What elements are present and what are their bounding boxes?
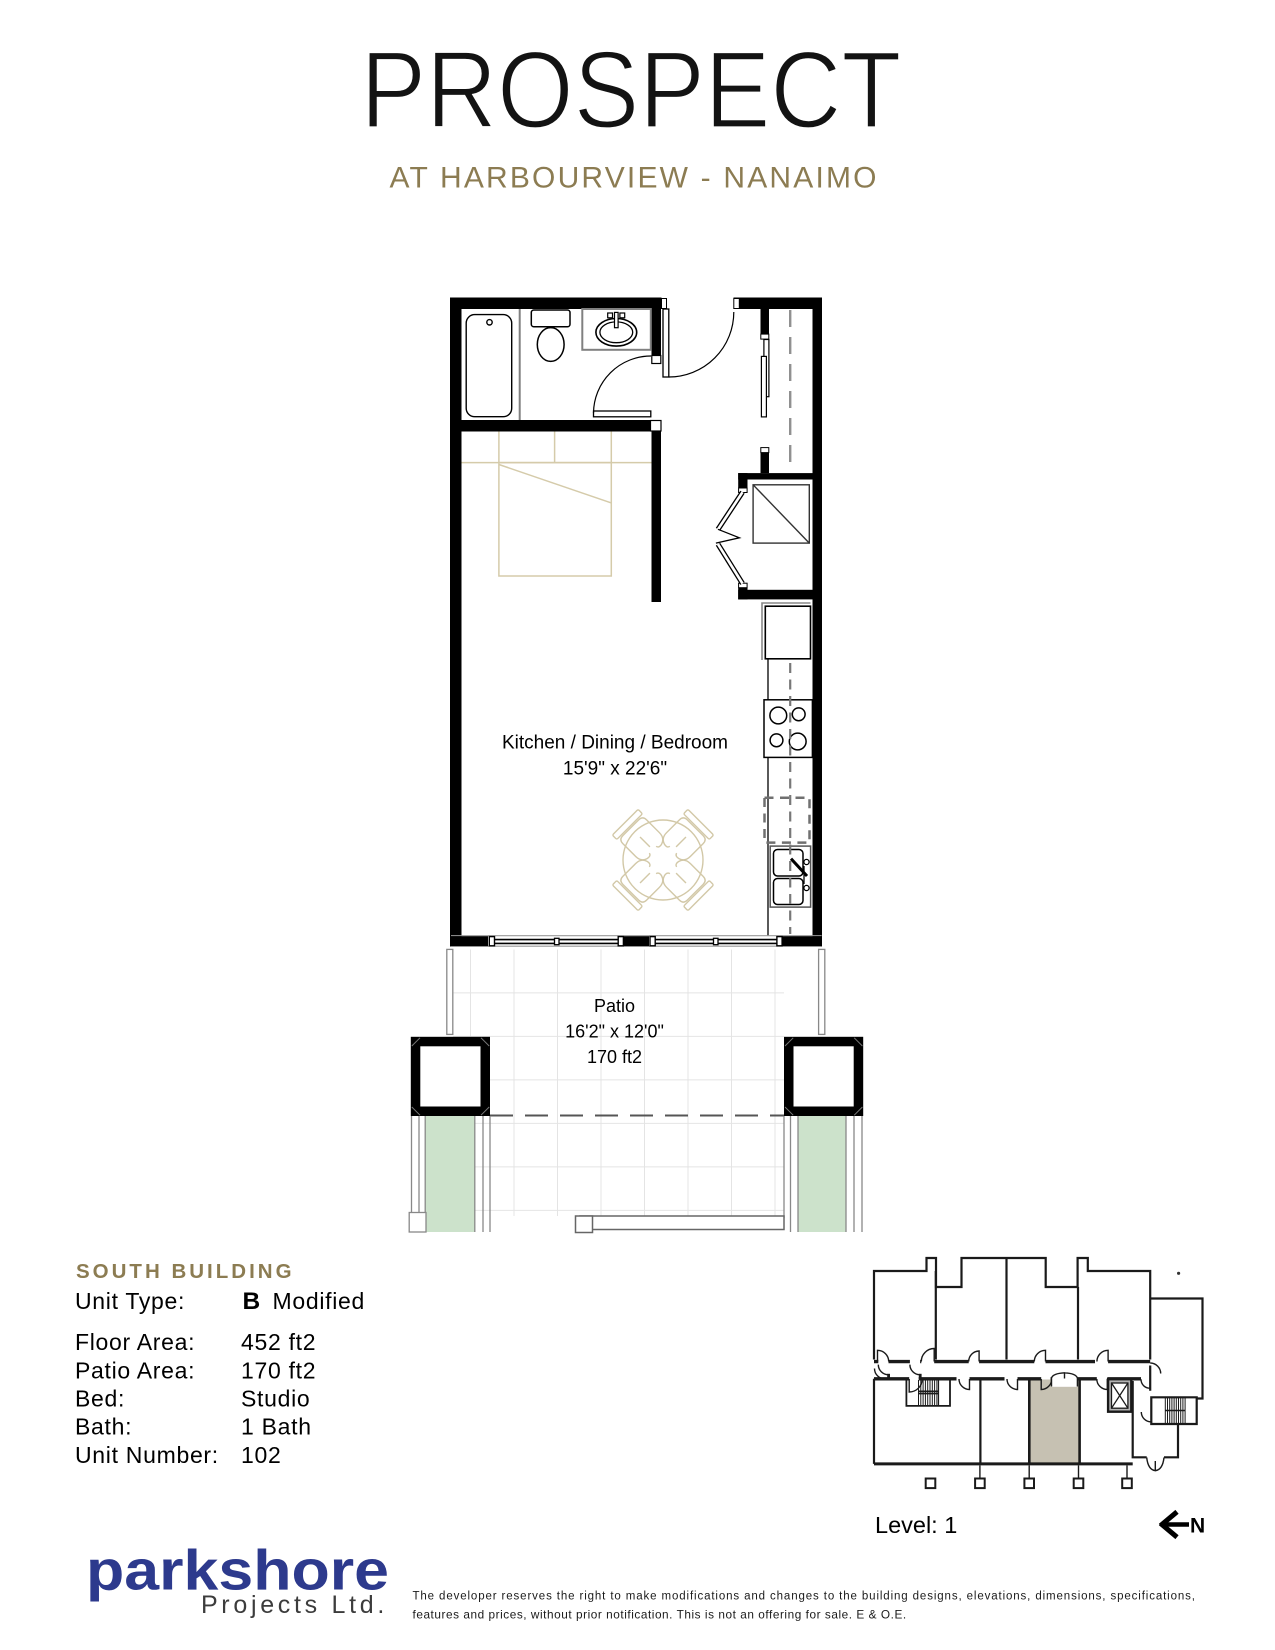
svg-text:1 Bath: 1 Bath [241, 1414, 312, 1440]
svg-text:Modified: Modified [273, 1288, 366, 1314]
svg-text:AT HARBOURVIEW - NANAIMO: AT HARBOURVIEW - NANAIMO [390, 162, 877, 195]
svg-text:Patio: Patio [594, 996, 635, 1016]
svg-text:Unit Number:: Unit Number: [75, 1442, 219, 1468]
svg-text:Projects Ltd.: Projects Ltd. [201, 1591, 388, 1619]
svg-text:102: 102 [241, 1442, 281, 1468]
svg-text:N: N [1190, 1515, 1205, 1538]
svg-text:Floor Area:: Floor Area: [75, 1329, 195, 1355]
svg-text:Unit Type:: Unit Type: [75, 1288, 185, 1314]
svg-text:SOUTH BUILDING: SOUTH BUILDING [76, 1260, 295, 1283]
svg-text:Studio: Studio [241, 1386, 310, 1412]
svg-text:16'2" x 12'0": 16'2" x 12'0" [565, 1022, 664, 1042]
svg-text:features and prices, without p: features and prices, without prior notif… [413, 1608, 907, 1622]
svg-text:The developer reserves the rig: The developer reserves the right to make… [413, 1591, 1195, 1603]
svg-text:170 ft2: 170 ft2 [241, 1358, 316, 1384]
svg-text:170 ft2: 170 ft2 [587, 1047, 642, 1067]
svg-text:PROSPECT: PROSPECT [361, 30, 902, 152]
svg-text:Bed:: Bed: [75, 1386, 125, 1412]
svg-text:Level: 1: Level: 1 [875, 1512, 957, 1538]
svg-text:Bath:: Bath: [75, 1414, 132, 1440]
svg-text:452 ft2: 452 ft2 [241, 1329, 316, 1355]
svg-text:Kitchen / Dining / Bedroom: Kitchen / Dining / Bedroom [502, 733, 728, 754]
svg-text:Patio Area:: Patio Area: [75, 1358, 195, 1384]
svg-text:15'9" x 22'6": 15'9" x 22'6" [563, 759, 667, 780]
svg-text:B: B [243, 1288, 261, 1315]
